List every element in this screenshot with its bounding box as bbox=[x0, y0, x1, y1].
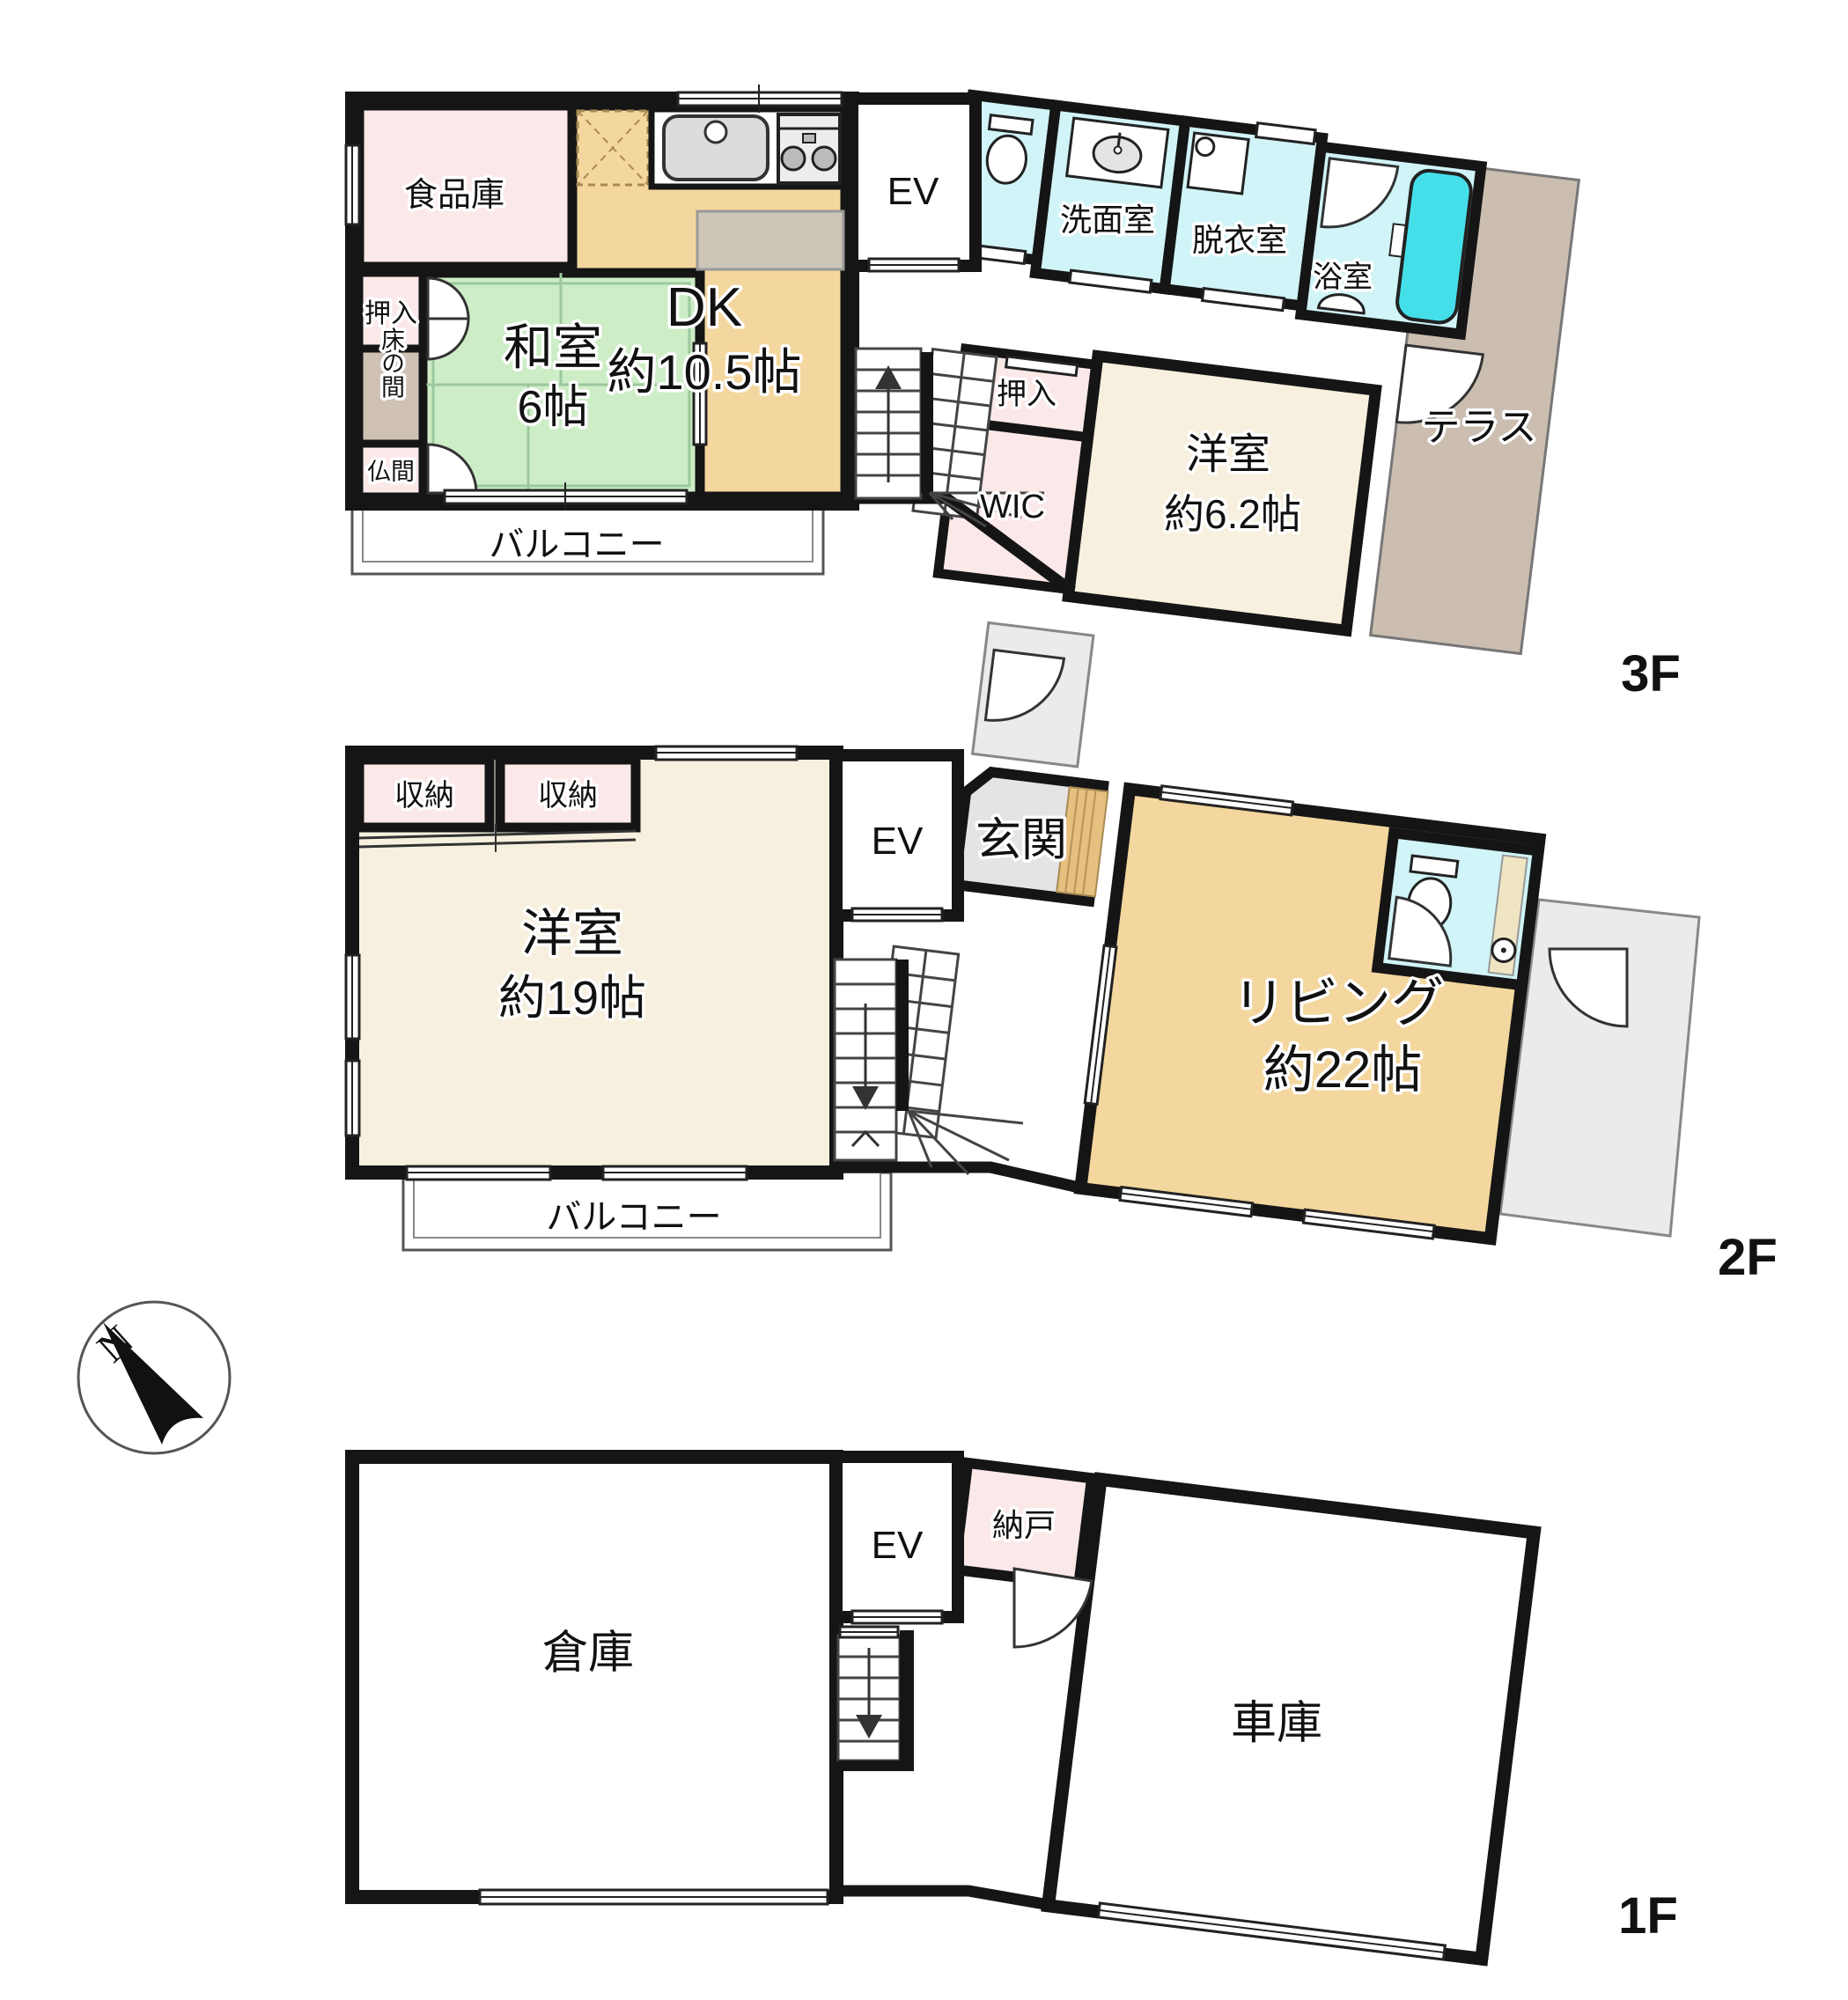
floor-2f: 収納 収納 洋室 約19帖 EV 玄関 リビング 約22帖 バルコニー 2F bbox=[346, 616, 1778, 1286]
room-label-youshitsu-2f: 洋室 bbox=[521, 905, 623, 962]
room-label-oshiire-left: 押入 bbox=[364, 299, 417, 328]
balcony-label-3f: バルコニー bbox=[489, 526, 664, 564]
room-label-youshitsu-3f: 洋室 bbox=[1186, 431, 1270, 478]
room-label-living-size: 約22帖 bbox=[1263, 1041, 1423, 1099]
room-label-youshitsu-size-3f: 約6.2帖 bbox=[1164, 491, 1301, 537]
floorplan-canvas: 食品庫 DK 約10.5帖 和室 6帖 押入 床の間 仏間 バルコニー EV 洗… bbox=[0, 0, 1848, 2000]
kitchen-hatch-box bbox=[578, 111, 648, 185]
room-label-dk-size: 約10.5帖 bbox=[607, 344, 802, 400]
window bbox=[346, 1061, 359, 1136]
ev-label-1f: EV bbox=[872, 1524, 924, 1567]
room-label-oshiire2: 押入 bbox=[997, 378, 1057, 411]
floor-1f: N 倉庫 EV 納戸 車庫 1F bbox=[78, 1302, 1678, 1964]
room-label-storage2: 収納 bbox=[538, 779, 598, 812]
room-label-dk: DK bbox=[666, 277, 742, 338]
terrace-label: テラス bbox=[1421, 406, 1536, 449]
room-label-warehouse: 倉庫 bbox=[542, 1628, 634, 1679]
stairs-1f bbox=[838, 1627, 914, 1771]
room-label-butsuma: 仏間 bbox=[367, 459, 415, 485]
ev-label-2f: EV bbox=[872, 820, 924, 863]
porch-2f bbox=[973, 622, 1093, 767]
room-label-nando: 納戸 bbox=[992, 1507, 1056, 1543]
room-label-washitsu: 和室 bbox=[504, 320, 602, 375]
sink-icon-senmen bbox=[1067, 118, 1168, 187]
room-label-wic: WIC bbox=[980, 489, 1045, 526]
window bbox=[656, 746, 797, 760]
room-label-living: リビング bbox=[1233, 974, 1444, 1033]
washer-icon-datsui bbox=[1188, 133, 1248, 194]
wing-3f bbox=[905, 87, 1581, 654]
room-toilet-2f bbox=[1377, 833, 1538, 985]
floor-label-3f: 3F bbox=[1621, 645, 1681, 702]
floor-3f: 食品庫 DK 約10.5帖 和室 6帖 押入 床の間 仏間 バルコニー EV 洗… bbox=[346, 85, 1681, 702]
room-label-youshitsu-size-2f: 約19帖 bbox=[498, 972, 646, 1025]
kitchen-sink-icon bbox=[664, 116, 768, 180]
window bbox=[603, 1166, 747, 1180]
window bbox=[407, 1166, 550, 1180]
ev-door-1f bbox=[852, 1611, 942, 1623]
room-label-datsui: 脱衣室 bbox=[1192, 222, 1287, 258]
compass: N bbox=[78, 1302, 230, 1453]
room-label-senmen: 洗面室 bbox=[1060, 202, 1155, 238]
room-label-bath: 浴室 bbox=[1313, 261, 1373, 294]
room-label-garage: 車庫 bbox=[1231, 1698, 1322, 1749]
room-label-tokonoma: 床の間 bbox=[378, 327, 405, 398]
window bbox=[480, 1890, 828, 1904]
stove-icon bbox=[778, 114, 840, 183]
window-left-pantry bbox=[346, 145, 359, 224]
room-label-storage1: 収納 bbox=[394, 779, 454, 812]
room-label-washitsu-size: 6帖 bbox=[518, 382, 589, 433]
floor-label-1f: 1F bbox=[1618, 1887, 1678, 1945]
ev-door-2f bbox=[852, 908, 942, 921]
balcony-label-2f: バルコニー bbox=[546, 1198, 721, 1237]
ev-door-3f bbox=[869, 259, 959, 271]
kitchen-counter bbox=[652, 109, 843, 187]
stair-door-1f bbox=[840, 1627, 898, 1637]
room-label-genkan: 玄関 bbox=[976, 815, 1067, 866]
dk-counter bbox=[697, 211, 843, 269]
room-label-pantry: 食品庫 bbox=[404, 177, 504, 214]
floor-label-2f: 2F bbox=[1718, 1229, 1778, 1286]
floorplan-page: 食品庫 DK 約10.5帖 和室 6帖 押入 床の間 仏間 バルコニー EV 洗… bbox=[0, 0, 1848, 2000]
ev-label-3f: EV bbox=[887, 170, 939, 213]
window bbox=[346, 955, 359, 1039]
